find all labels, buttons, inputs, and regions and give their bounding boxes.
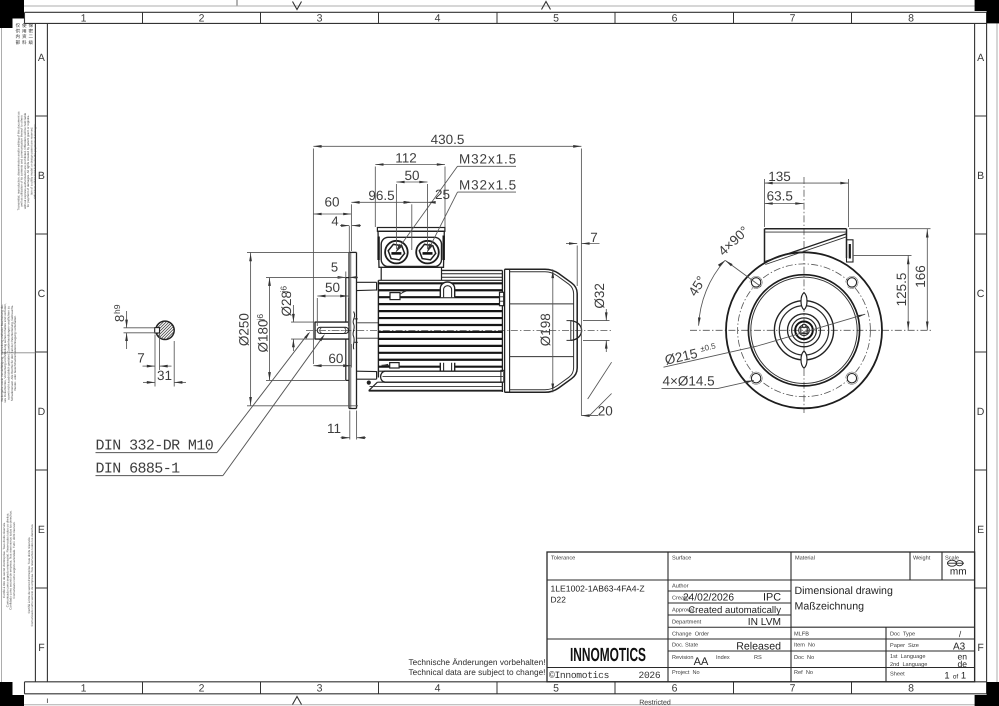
svg-text:3: 3	[317, 683, 323, 695]
svg-text:50: 50	[325, 280, 340, 295]
svg-text:Ø28: Ø28	[279, 291, 294, 317]
svg-text:63.5: 63.5	[767, 189, 793, 204]
svg-text:Revision: Revision	[672, 654, 693, 661]
svg-text:Tolerance: Tolerance	[551, 555, 575, 562]
svg-text:1: 1	[961, 670, 966, 681]
svg-text:6: 6	[672, 683, 678, 695]
svg-text:E: E	[38, 524, 45, 536]
svg-text:保: 保	[28, 23, 33, 28]
svg-text:Author: Author	[672, 583, 689, 590]
svg-text:Ø32: Ø32	[592, 283, 607, 309]
svg-text:F: F	[38, 642, 44, 654]
svg-text:Restricted: Restricted	[639, 698, 671, 706]
svg-text:h9: h9	[112, 304, 122, 314]
svg-text:B: B	[38, 170, 45, 182]
svg-text:5: 5	[553, 683, 559, 695]
svg-text:2026: 2026	[639, 670, 661, 681]
svg-text:3: 3	[317, 12, 323, 24]
svg-text:Doc No: Doc No	[794, 655, 814, 661]
svg-text:4: 4	[435, 12, 441, 24]
svg-text:1: 1	[944, 670, 949, 681]
svg-text:2: 2	[199, 683, 205, 695]
svg-text:Maßzeichnung: Maßzeichnung	[795, 601, 865, 613]
svg-text:2: 2	[199, 12, 205, 24]
svg-text:mm: mm	[950, 567, 967, 578]
svg-text:112: 112	[395, 150, 417, 165]
svg-text:Item No: Item No	[794, 643, 815, 649]
svg-text:1st Language: 1st Language	[890, 654, 925, 660]
svg-text:IPC: IPC	[763, 591, 781, 603]
svg-text:M32x1.5: M32x1.5	[459, 152, 517, 167]
svg-text:166: 166	[913, 265, 928, 288]
svg-text:B: B	[977, 170, 984, 182]
svg-text:Dimensional drawing: Dimensional drawing	[795, 585, 893, 597]
svg-text:A: A	[977, 52, 984, 64]
svg-text:1LE1002-1AB63-4FA4-Z: 1LE1002-1AB63-4FA4-Z	[551, 584, 645, 594]
svg-text:7: 7	[137, 351, 145, 366]
svg-text:11: 11	[327, 421, 341, 436]
svg-text:C: C	[977, 288, 985, 300]
svg-text:4×Ø14.5: 4×Ø14.5	[663, 374, 715, 389]
svg-text:7: 7	[790, 683, 796, 695]
svg-text:Material: Material	[795, 555, 815, 562]
svg-text:Department: Department	[672, 620, 702, 626]
svg-text:of: of	[953, 674, 959, 681]
svg-text:A: A	[38, 52, 45, 64]
svg-text:©Innomotics: ©Innomotics	[549, 670, 609, 681]
svg-text:50: 50	[404, 168, 419, 183]
svg-text:5: 5	[553, 12, 559, 24]
svg-text:Technical data are subject to: Technical data are subject to change!	[409, 667, 546, 677]
svg-text:5: 5	[331, 260, 338, 275]
svg-text:供: 供	[15, 29, 20, 34]
svg-text:Change Order: Change Order	[672, 631, 709, 638]
svg-text:muster- oder Geschmacksmustere: muster- oder Geschmacksmustereintragung …	[13, 315, 17, 391]
svg-text:60: 60	[328, 351, 343, 366]
svg-text:j6: j6	[279, 286, 289, 294]
svg-text:7: 7	[790, 12, 796, 24]
svg-text:j6: j6	[255, 314, 265, 322]
svg-text:仅: 仅	[15, 23, 20, 28]
svg-text:C: C	[38, 288, 46, 300]
svg-text:125.5: 125.5	[894, 273, 909, 307]
svg-text:430.5: 430.5	[431, 132, 465, 147]
svg-text:IN LVM: IN LVM	[748, 617, 781, 628]
svg-text:DIN 332-DR M10: DIN 332-DR M10	[96, 438, 214, 455]
svg-text:1: 1	[81, 12, 87, 24]
svg-text:8: 8	[908, 12, 914, 24]
svg-text:Ø180: Ø180	[255, 319, 270, 352]
svg-text:Weight: Weight	[913, 555, 931, 562]
svg-text:RS: RS	[754, 655, 762, 661]
svg-text:级: 级	[28, 40, 33, 45]
svg-text:Offenders will be held liable: Offenders will be held liable for the pa…	[33, 123, 37, 199]
svg-text:Paper Size: Paper Size	[890, 642, 919, 649]
svg-text:Project No: Project No	[672, 669, 700, 676]
svg-text:部: 部	[15, 40, 20, 45]
svg-text:Ref No: Ref No	[794, 669, 813, 676]
svg-text:Doc Type: Doc Type	[890, 632, 915, 638]
svg-text:Surface: Surface	[672, 555, 691, 562]
svg-text:INNOMOTICS: INNOMOTICS	[570, 645, 646, 666]
svg-text:D22: D22	[551, 595, 567, 605]
svg-text:Comunicado como secreto de emp: Comunicado como secreto de empresa. Nos …	[30, 523, 34, 626]
svg-text:Created automatically: Created automatically	[688, 605, 781, 616]
svg-text:24/02/2026: 24/02/2026	[683, 592, 734, 603]
svg-text:Sheet: Sheet	[890, 671, 905, 678]
svg-text:DIN 6885-1: DIN 6885-1	[96, 461, 181, 478]
svg-text:F: F	[977, 642, 983, 654]
svg-text:Ø198: Ø198	[538, 313, 553, 346]
svg-text:Ø250: Ø250	[236, 313, 251, 346]
svg-text:25: 25	[435, 187, 450, 202]
svg-text:135: 135	[768, 169, 791, 184]
svg-text:使: 使	[22, 23, 27, 28]
svg-text:Index: Index	[716, 654, 730, 661]
svg-text:20: 20	[598, 403, 613, 418]
svg-text:7: 7	[590, 230, 598, 245]
svg-text:60: 60	[324, 195, 339, 210]
svg-text:AA: AA	[694, 656, 709, 668]
svg-text:资: 资	[22, 34, 27, 39]
svg-text:4: 4	[435, 683, 441, 695]
svg-text:31: 31	[157, 368, 172, 383]
svg-text:96.5: 96.5	[368, 188, 394, 203]
svg-text:M32x1.5: M32x1.5	[459, 177, 517, 192]
svg-text:Comunicato como segreto aziend: Comunicato como segreto aziendale. Tutti…	[12, 521, 16, 598]
svg-text:二: 二	[28, 34, 33, 39]
svg-text:6: 6	[672, 12, 678, 24]
svg-text:D: D	[977, 406, 985, 418]
svg-text:料: 料	[22, 40, 27, 45]
svg-text:4: 4	[331, 213, 338, 228]
svg-text:E: E	[977, 524, 984, 536]
svg-text:MLFB: MLFB	[794, 632, 809, 638]
svg-text:Doc. State: Doc. State	[672, 643, 698, 649]
svg-text:Technische Änderungen vorbehal: Technische Änderungen vorbehalten!	[409, 657, 546, 667]
svg-text:8: 8	[112, 315, 127, 322]
svg-text:内: 内	[15, 34, 20, 39]
svg-text:de: de	[958, 659, 968, 669]
svg-text:D: D	[38, 406, 46, 418]
svg-text:8: 8	[908, 683, 914, 695]
svg-text:Released: Released	[736, 641, 781, 653]
svg-text:用: 用	[22, 29, 27, 34]
svg-text:1: 1	[81, 683, 87, 695]
svg-text:2nd Language: 2nd Language	[890, 661, 927, 668]
svg-text:密: 密	[28, 29, 33, 34]
